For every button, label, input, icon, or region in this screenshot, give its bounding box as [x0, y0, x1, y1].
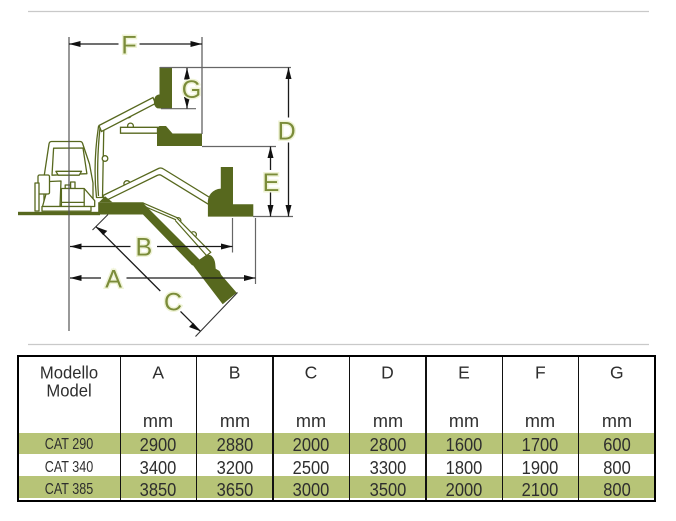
svg-text:E: E — [263, 169, 280, 197]
svg-text:F: F — [121, 31, 136, 59]
svg-text:D: D — [278, 118, 296, 146]
svg-text:C: C — [164, 289, 182, 317]
svg-text:G: G — [182, 76, 201, 104]
svg-text:B: B — [135, 234, 152, 262]
svg-text:A: A — [105, 265, 122, 293]
